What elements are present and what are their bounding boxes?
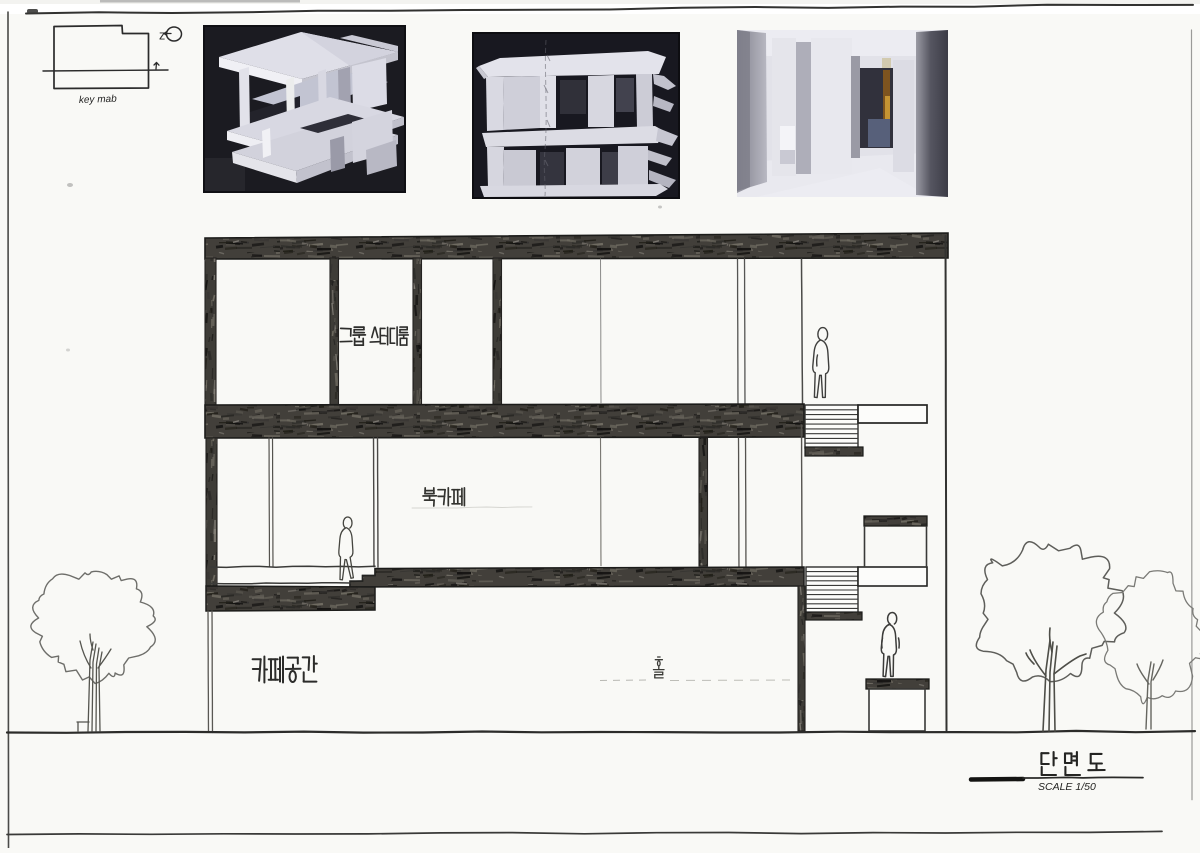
svg-text:SCALE 1/50: SCALE 1/50 [1038,781,1096,793]
svg-text:key mab: key mab [79,94,118,106]
svg-text:z: z [159,29,165,43]
